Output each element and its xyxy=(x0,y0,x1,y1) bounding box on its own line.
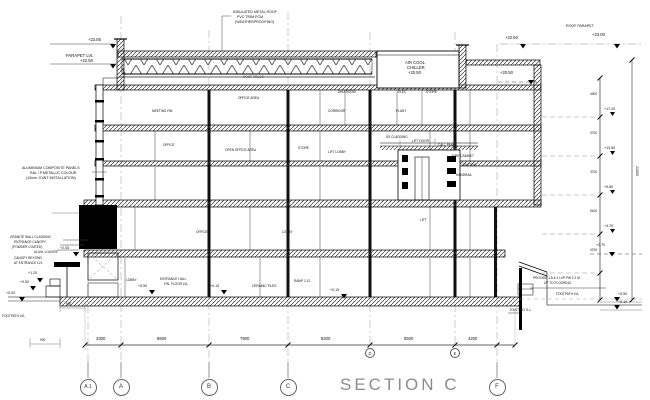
dim-right-5: 4700 xyxy=(590,249,597,253)
room-lift-lobby: LIFT LOBBY xyxy=(328,151,346,155)
dim-bottom-6: 4200 xyxy=(468,337,477,342)
cluster-note-1: SS CLADDING xyxy=(386,136,408,140)
roof-parapet-value: +23.00 xyxy=(592,33,605,38)
chain-level-3: +9.80 xyxy=(604,186,613,190)
dim-bottom-3: 7900 xyxy=(240,337,249,342)
room-ceramic: CERAMIC TILES xyxy=(252,285,276,289)
section-title: SECTION C xyxy=(340,376,460,395)
level-chiller-deck: +20.50 xyxy=(500,71,513,76)
entrance-note-4: ALUM. LOUVRE xyxy=(34,251,58,255)
cluster-note-6: HANDRAIL xyxy=(456,174,472,178)
grid-bubble-d: D xyxy=(365,348,375,358)
provide-note-1: PROVIDE 1.8 & 2 LVP PW 2.2 M. xyxy=(533,277,581,281)
room-office1: OFFICE xyxy=(196,231,208,235)
lift-detail-cluster xyxy=(380,138,478,200)
cluster-note-3: CALL PANEL xyxy=(438,144,457,148)
grid-bubble-c-label: C xyxy=(286,384,290,390)
level-hall: +0.15 xyxy=(210,285,219,289)
grid-bubble-b: B xyxy=(201,379,218,396)
grid-bubble-a-label: A xyxy=(119,384,123,390)
room-office3: OFFICE xyxy=(163,144,175,148)
cluster-note-5: SKIRTING xyxy=(462,164,477,168)
cluster-note-2: LIFT DOOR xyxy=(412,140,429,144)
level-top-left: +23.85 xyxy=(88,38,101,43)
dim-bottom-5: 8500 xyxy=(404,337,413,342)
grid-bubble-d-label: D xyxy=(368,351,371,356)
grid-bubble-f: F xyxy=(489,379,506,396)
entrance-note-2: ENTRANCE CANOPY xyxy=(14,241,46,245)
dim-right-1: 4300 xyxy=(590,93,597,97)
room-plant: PLANT xyxy=(396,110,406,114)
chain-level-4: +4.70 xyxy=(604,225,613,229)
room-lobby1: LOBBY xyxy=(282,231,293,235)
level-entry-step: +0.50 xyxy=(20,281,29,285)
footpath-label: FOOTPATH LVL xyxy=(2,315,25,319)
grid-bubble-e-label: E xyxy=(454,351,457,356)
truss-label: ROOF TRUSS xyxy=(243,76,264,80)
level-lobby: +0.50 xyxy=(138,285,147,289)
grid-bubble-a1-label: A.1 xyxy=(84,384,92,390)
room-ramp: RAMP 1:12 xyxy=(294,280,310,284)
room-meeting: MEETING RM xyxy=(152,110,172,114)
room-corridor: CORRIDOR xyxy=(328,110,345,114)
room-elec: ELEC xyxy=(398,91,406,95)
level-entry: +1.20 xyxy=(28,272,37,276)
room-lift: LIFT xyxy=(420,219,427,223)
footpath-right-label: FOOTPATH LVL xyxy=(556,293,579,297)
cluster-note-4: FIRE CABINET xyxy=(452,155,474,159)
grid-bubble-c: C xyxy=(280,379,297,396)
dim-bottom-1: 3300 xyxy=(96,337,105,342)
grid-bubble-b-label: B xyxy=(207,384,211,390)
grid-bubble-a1: A.1 xyxy=(80,379,97,396)
dim-left-2: 900 xyxy=(40,339,45,343)
dim-left-1: 500 xyxy=(66,303,71,307)
dim-bottom-2: 8800 xyxy=(157,337,166,342)
roof-parapet-label: ROOF PARAPET xyxy=(566,25,594,29)
left-facade xyxy=(95,85,104,205)
panels-note-line3: (10mm JOINT INSTALLATION) xyxy=(26,177,76,181)
grid-bubble-a: A xyxy=(113,379,130,396)
room-store3: STORE xyxy=(298,147,309,151)
chiller-line3: +20.50 xyxy=(408,71,421,76)
entrance-note-1: GRANITE WALL CLADDING xyxy=(10,236,51,240)
level-canopy: +2.05 xyxy=(60,247,69,251)
provide-note-2: UP TO FLOORING xyxy=(544,282,571,286)
room-lobby-g: LOBBY xyxy=(126,279,137,283)
level-top-right: +22.50 xyxy=(505,36,518,41)
entrance-note-3: (POWDER COATED) xyxy=(12,246,42,250)
grid-bubble-e: E xyxy=(450,348,460,358)
level-right-upper: +2.70 xyxy=(596,244,605,248)
level-ramp: +0.10 xyxy=(330,289,339,293)
chain-level-2: +13.50 xyxy=(604,147,615,151)
floor-slabs xyxy=(60,51,541,306)
entrance-note-5: CANOPY BEYOND xyxy=(14,257,42,261)
room-office-area: OFFICE AREA xyxy=(238,97,259,101)
dim-right-3: 3700 xyxy=(590,171,597,175)
level-right-a: +0.50 xyxy=(618,293,627,297)
roof-note-line3: (WEATHERPROOFING) xyxy=(235,21,274,25)
entrance-note-6: AT ENTRANCE LVL xyxy=(14,262,43,266)
drawing-sheet: INSULATED METAL ROOF PVC TRIM PCM (WEATH… xyxy=(0,0,650,400)
room-open-office: OPEN OFFICE AREA xyxy=(225,149,256,153)
dim-right-4: 5100 xyxy=(590,210,597,214)
chain-level-1: +17.20 xyxy=(604,108,615,112)
entrance-canopy-zone xyxy=(8,205,118,301)
dim-right-overall: 21500 xyxy=(634,166,638,176)
room-entrance-hall: ENTRANCE HALL xyxy=(160,278,186,282)
dim-right-2: 3700 xyxy=(590,132,597,136)
room-ahu: AHU ROOM xyxy=(338,91,356,95)
level-ground-zero: +0.00 xyxy=(6,292,15,296)
existing-gl-label: EXISTING G.L. xyxy=(510,309,532,313)
parapet-value: +22.50 xyxy=(80,59,93,64)
room-fin-floor: FIN. FLOOR LVL xyxy=(164,283,188,287)
grid-bubble-f-label: F xyxy=(495,384,499,390)
right-dimension-chain xyxy=(542,58,635,303)
level-right-b: +0.10 xyxy=(618,301,627,305)
dim-bottom-4: 8200 xyxy=(321,337,330,342)
bottom-dimension-line xyxy=(30,303,518,350)
room-store4: STORE xyxy=(426,91,437,95)
